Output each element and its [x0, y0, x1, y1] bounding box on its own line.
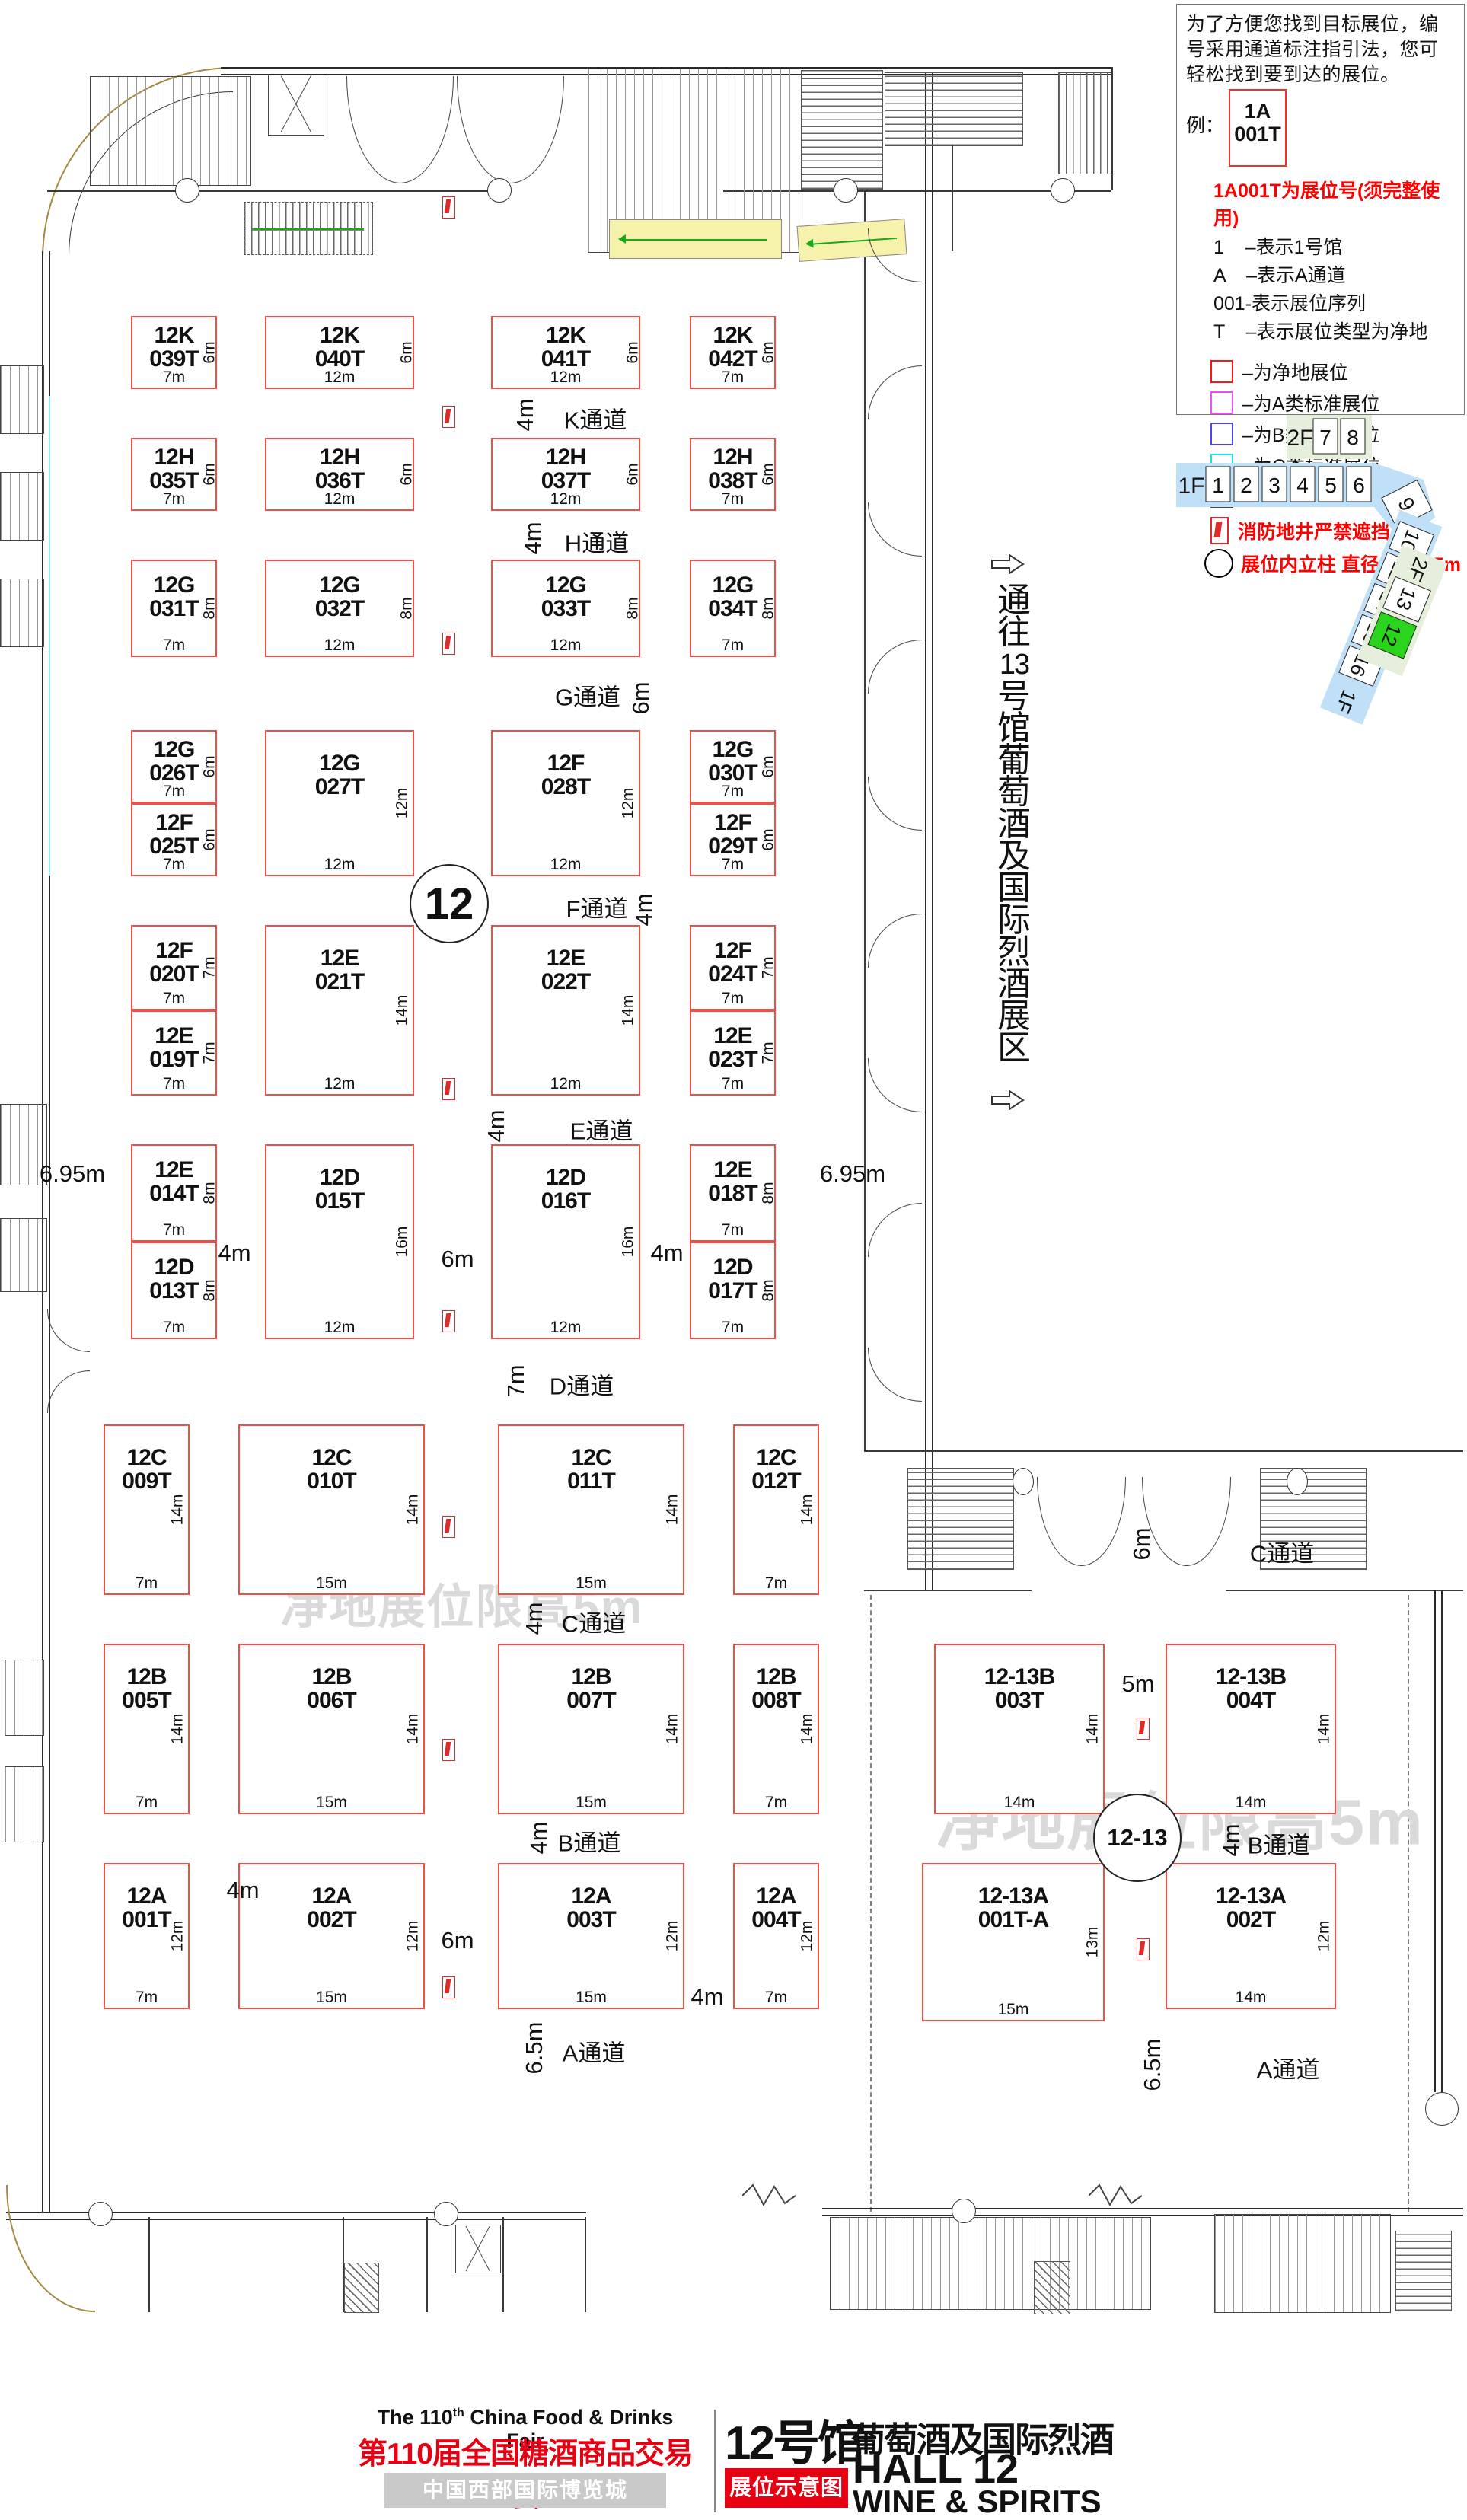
booth: 12H037T12m6m — [491, 438, 640, 511]
booth-id-line1: 12G — [493, 573, 639, 597]
example-booth-line1: 1A — [1230, 100, 1285, 123]
booth-depth-label: 6m — [759, 341, 777, 363]
column — [1425, 2092, 1459, 2126]
booth-width-label: 7m — [132, 368, 215, 387]
booth-id-line1: 12B — [105, 1665, 188, 1689]
booth-id: 12H037T — [493, 445, 639, 493]
door-arc — [868, 228, 922, 282]
door-arc — [510, 76, 564, 183]
corridor-note-char: 萄 — [990, 777, 1038, 809]
booth-id: 12B007T — [499, 1665, 683, 1712]
booth-width-label: 7m — [735, 1574, 818, 1593]
dimension-label: 6m — [441, 1927, 474, 1954]
booth: 12C012T7m14m — [733, 1424, 819, 1595]
booth: 12K039T7m6m — [131, 316, 217, 389]
booth: 12C010T15m14m — [238, 1424, 425, 1595]
booth-id-line1: 12E — [266, 946, 413, 970]
stairs-block — [1058, 72, 1111, 174]
hall-boundary-dashed-left — [870, 1595, 872, 2212]
booth-depth-label: 6m — [623, 341, 642, 363]
booth-id-line1: 12C — [105, 1446, 188, 1469]
passage-bottom-wall-a — [864, 1590, 1032, 1591]
corridor-note-char: 酒 — [990, 968, 1038, 1000]
booth-id-line1: 12E — [132, 1158, 215, 1182]
booth: 12G034T7m8m — [690, 560, 776, 657]
booth-id-line1: 12A — [240, 1884, 423, 1908]
passage-bottom-wall-b — [1226, 1590, 1463, 1591]
column — [1013, 1468, 1034, 1495]
booth-depth-label: 6m — [759, 828, 777, 850]
passage-stairs — [907, 1468, 1014, 1570]
corridor-note-char: 号 — [990, 681, 1038, 713]
aisle-width-label: 6m — [627, 681, 655, 714]
column — [487, 178, 512, 203]
door-arc — [1186, 1477, 1231, 1566]
restroom-block-topleft — [90, 76, 251, 186]
corridor-note-char: 际 — [990, 904, 1038, 936]
booth-depth-label: 6m — [759, 463, 777, 485]
booth-id: 12D015T — [266, 1166, 413, 1213]
footer-divider — [714, 2410, 716, 2512]
left-room — [5, 1660, 44, 1736]
booth-width-label: 7m — [691, 1319, 774, 1337]
booth: 12E018T7m8m — [690, 1144, 776, 1242]
aisle-name-label: F通道 — [566, 890, 628, 924]
aisle-width-label: 7m — [502, 1364, 530, 1397]
booth-depth-label: 13m — [1084, 1927, 1102, 1958]
booth-id: 12G027T — [266, 751, 413, 799]
booth-id-line2: 009T — [105, 1469, 188, 1493]
booth-width-label: 7m — [105, 1794, 188, 1812]
fair-name-en-sup: th — [453, 2407, 464, 2420]
legend-red-note: 1A001T为展位号(须完整使用) — [1213, 176, 1464, 231]
booth-width-label: 7m — [132, 856, 215, 874]
corridor-note-char: 葡 — [990, 745, 1038, 777]
hall-number-badge: 12-13 — [1093, 1794, 1182, 1882]
left-room — [5, 1766, 44, 1842]
corridor-note-char: 烈 — [990, 936, 1038, 968]
booth-id-line1: 12D — [691, 1255, 774, 1279]
booth-depth-label: 6m — [759, 755, 777, 777]
booth-id: 12A002T — [240, 1884, 423, 1931]
legend-intro: 为了方便您找到目标展位，编号采用通道标注指引法，您可轻松找到要到达的展位。 — [1186, 12, 1455, 88]
booth-id: 12H036T — [266, 445, 413, 493]
door-arc — [400, 76, 454, 183]
booth-id-line1: 12A — [105, 1884, 188, 1908]
booth: 12C011T15m14m — [498, 1424, 684, 1595]
aisle-width-label: 6.5m — [1139, 2039, 1166, 2091]
booth-width-label: 7m — [132, 1221, 215, 1239]
bottom-struct-wall — [502, 2217, 504, 2312]
booth: 12F024T7m7m — [690, 925, 776, 1010]
booth-id: 12F028T — [493, 751, 639, 799]
booth-width-label: 12m — [266, 1075, 413, 1093]
column — [952, 2199, 976, 2223]
door-arc — [868, 777, 922, 831]
booth: 12H036T12m6m — [265, 438, 414, 511]
booth: 12B006T15m14m — [238, 1644, 425, 1814]
booth-id-line2: 037T — [493, 469, 639, 493]
fire-well-icon — [442, 1310, 455, 1332]
booth-depth-label: 6m — [200, 341, 218, 363]
aisle-width-label: 4m — [519, 522, 547, 554]
booth-depth-label: 7m — [200, 1041, 218, 1064]
aisle-name-label: E通道 — [570, 1112, 633, 1147]
booth-id-line1: 12C — [240, 1446, 423, 1469]
left-wall-accent — [49, 396, 50, 876]
locator-1f-label: 1F — [1178, 474, 1204, 499]
booth: 12-13A001T-A15m13m — [922, 1863, 1105, 2021]
booth-id-line1: 12D — [266, 1166, 413, 1189]
fire-well-icon — [442, 633, 455, 655]
locator-2f-label: 2F — [1287, 426, 1313, 451]
fire-well-icon — [1137, 1718, 1150, 1740]
booth-id: 12B006T — [240, 1665, 423, 1712]
restroom-block-bottomright — [1214, 2214, 1391, 2313]
booth-depth-label: 8m — [759, 1182, 777, 1204]
booth: 12A004T7m12m — [733, 1863, 819, 2009]
booth-depth-label: 6m — [200, 828, 218, 850]
booth-id: 12-13B004T — [1167, 1665, 1335, 1712]
booth-width-label: 7m — [691, 368, 774, 387]
booth-width-label: 7m — [105, 1989, 188, 2007]
booth-depth-label: 12m — [1316, 1921, 1334, 1952]
booth: 12K040T12m6m — [265, 316, 414, 389]
booth-id-line2: 027T — [266, 775, 413, 799]
booth-id-line2: 033T — [493, 597, 639, 620]
annex-right-wall — [1434, 1590, 1443, 2092]
left-room — [0, 1218, 47, 1292]
booth-width-label: 7m — [691, 636, 774, 655]
booth-depth-label: 8m — [397, 597, 416, 619]
aisle-width-label: 4m — [512, 398, 539, 431]
booth-width-label: 7m — [132, 490, 215, 509]
booth-id-line2: 007T — [499, 1689, 683, 1712]
aisle-name-label: D通道 — [550, 1367, 614, 1402]
door-arc — [868, 1058, 922, 1112]
booth-id-line2: 015T — [266, 1189, 413, 1213]
locator-hall-number: 6 — [1353, 474, 1365, 497]
fire-well-icon — [442, 1976, 455, 1998]
booth: 12H035T7m6m — [131, 438, 217, 511]
booth-id-line1: 12F — [493, 751, 639, 775]
booth-id: 12C010T — [240, 1446, 423, 1493]
booth: 12B007T15m14m — [498, 1644, 684, 1814]
booth: 12E023T7m7m — [690, 1010, 776, 1096]
booth-width-label: 12m — [493, 368, 639, 387]
booth-depth-label: 14m — [620, 995, 638, 1026]
corridor-note-char: 及 — [990, 841, 1038, 872]
booth-id: 12G033T — [493, 573, 639, 620]
hall-boundary-dashed-right — [1408, 1595, 1409, 2212]
restroom-block-bottom — [830, 2217, 1151, 2310]
fire-well-icon — [442, 1078, 455, 1100]
booth-width-label: 12m — [266, 856, 413, 874]
legend-decode-lines: 1 –表示1号馆A –表示A通道001-表示展位序列T –表示展位类型为净地 — [1177, 234, 1464, 346]
booth-id-line1: 12B — [240, 1665, 423, 1689]
booth: 12E022T12m14m — [491, 925, 640, 1096]
booth-depth-label: 8m — [200, 1279, 218, 1301]
booth-depth-label: 14m — [664, 1494, 682, 1526]
stairs-block — [885, 72, 1023, 146]
right-arrow-icon — [991, 1090, 1025, 1110]
bottom-struct-wall — [426, 2217, 428, 2312]
booth-width-label: 12m — [493, 490, 639, 509]
legend-swatch-label: –为净地展位 — [1242, 358, 1348, 385]
booth-id-line1: 12-13A — [1167, 1884, 1335, 1908]
dimension-label: 4m — [690, 1983, 723, 2011]
booth-id-line1: 12K — [266, 324, 413, 347]
booth: 12A001T7m12m — [104, 1863, 190, 2009]
legend-decode-line: A –表示A通道 — [1213, 262, 1464, 290]
booth-id-line1: 12K — [493, 324, 639, 347]
legend-example-booth: 1A 001T — [1229, 89, 1287, 167]
booth: 12F029T7m6m — [690, 803, 776, 876]
hall-right-wall — [864, 190, 866, 1450]
corridor-note-char: 13 — [990, 649, 1038, 681]
booth: 12F020T7m7m — [131, 925, 217, 1010]
booth-depth-label: 14m — [1316, 1714, 1334, 1745]
corridor-note-char: 国 — [990, 872, 1038, 904]
legend-example: 例： 1A 001T — [1186, 89, 1464, 165]
booth-id-line2: 008T — [735, 1689, 818, 1712]
booth: 12B008T7m14m — [733, 1644, 819, 1814]
footer-branding: The 110th China Food & Drinks Fair 第110届… — [0, 2383, 1467, 2518]
booth-depth-label: 8m — [759, 1279, 777, 1301]
booth-id-line1: 12E — [493, 946, 639, 970]
booth-id: 12A003T — [499, 1884, 683, 1931]
booth-id-line1: 12C — [735, 1446, 818, 1469]
zigzag-break — [742, 2182, 796, 2209]
locator-hall-number: 5 — [1325, 474, 1337, 497]
booth: 12G032T12m8m — [265, 560, 414, 657]
booth-id-line2: 002T — [1167, 1908, 1335, 1931]
booth-width-label: 12m — [493, 1075, 639, 1093]
corridor-note-to-hall13: 通往13号馆葡萄酒及国际烈酒展区 — [990, 585, 1038, 1064]
dimension-label: 6m — [441, 1246, 474, 1273]
dimension-label: 4m — [650, 1239, 683, 1267]
door-arc — [868, 502, 922, 557]
column — [175, 178, 199, 203]
aisle-width-label: 4m — [521, 1602, 548, 1635]
booth-depth-label: 14m — [664, 1714, 682, 1745]
zigzag-break — [1089, 2182, 1142, 2209]
booth-width-label: 15m — [240, 1574, 423, 1593]
aisle-name-label: C通道 — [562, 1605, 626, 1639]
locator-hall-number: 7 — [1319, 426, 1331, 449]
booth-id-line2: 003T — [936, 1689, 1103, 1712]
left-room — [0, 579, 44, 647]
corridor-note-char: 展 — [990, 1000, 1038, 1032]
booth-depth-label: 8m — [200, 1182, 218, 1204]
booth-depth-label: 12m — [799, 1921, 817, 1952]
booth-width-label: 15m — [240, 1794, 423, 1812]
booth-id: 12D016T — [493, 1166, 639, 1213]
booth-depth-label: 6m — [397, 341, 416, 363]
booth-id-line2: 032T — [266, 597, 413, 620]
inner-wall-top-left — [47, 190, 489, 192]
booth-id-line2: 003T — [499, 1908, 683, 1931]
booth-depth-label: 12m — [169, 1921, 187, 1952]
booth-id-line1: 12B — [499, 1665, 683, 1689]
booth-depth-label: 14m — [169, 1494, 187, 1526]
locator-hall-number: 3 — [1268, 474, 1280, 497]
stairs-block — [801, 70, 883, 190]
bottom-struct-wall — [585, 2217, 586, 2312]
booth-id-line2: 036T — [266, 469, 413, 493]
aisle-width-label: 4m — [525, 1821, 553, 1854]
locator-hall-number: 8 — [1347, 426, 1359, 449]
booth: 12-13B004T14m14m — [1166, 1644, 1336, 1814]
corridor-outer-wall — [925, 72, 933, 1591]
booth-id-line1: 12B — [735, 1665, 818, 1689]
booth-id-line2: 004T — [1167, 1689, 1335, 1712]
booth-id: 12E021T — [266, 946, 413, 994]
booth-depth-label: 6m — [200, 755, 218, 777]
booth: 12E021T12m14m — [265, 925, 414, 1096]
booth-id-line1: 12C — [499, 1446, 683, 1469]
door-arc — [457, 76, 511, 183]
booth-width-label: 7m — [735, 1989, 818, 2007]
top-band-right-wall — [1111, 67, 1113, 190]
booth-id-line2: 011T — [499, 1469, 683, 1493]
booth-width-label: 15m — [499, 1794, 683, 1812]
fire-well-icon — [1137, 1938, 1150, 1960]
corridor-note-char: 通 — [990, 585, 1038, 617]
booth-id: 12-13A002T — [1167, 1884, 1335, 1931]
fair-name-en-pre: The 110 — [378, 2406, 453, 2429]
booth-id: 12-13B003T — [936, 1665, 1103, 1712]
bottom-struct-wall — [148, 2217, 150, 2312]
aisle-name-label: C通道 — [1250, 1535, 1314, 1569]
legend-decode-line: T –表示展位类型为净地 — [1213, 318, 1464, 346]
booth-id-line2: 010T — [240, 1469, 423, 1493]
door-arc — [1081, 1477, 1126, 1566]
booth: 12E019T7m7m — [131, 1010, 217, 1096]
booth-width-label: 12m — [493, 636, 639, 655]
booth: 12G031T7m8m — [131, 560, 217, 657]
booth-width-label: 15m — [240, 1989, 423, 2007]
booth-id-line1: 12D — [493, 1166, 639, 1189]
elevator-shaft — [455, 2225, 501, 2273]
booth-width-label: 12m — [266, 1319, 413, 1337]
door-arc — [868, 640, 922, 694]
aisle-name-label: A通道 — [563, 2034, 626, 2069]
booth-id: 12E022T — [493, 946, 639, 994]
dimension-label: 4m — [218, 1239, 250, 1267]
stairs-block — [1395, 2231, 1452, 2311]
aisle-width-label: 4m — [483, 1109, 510, 1142]
column — [1287, 1468, 1308, 1495]
booth-width-label: 12m — [266, 636, 413, 655]
corridor-note-char: 馆 — [990, 713, 1038, 745]
column — [434, 2202, 458, 2226]
booth-width-label: 12m — [493, 856, 639, 874]
booth-id-line2: 021T — [266, 970, 413, 994]
booth-width-label: 7m — [132, 990, 215, 1008]
booth-width-label: 7m — [132, 1319, 215, 1337]
booth: 12G027T12m12m — [265, 730, 414, 876]
plan-tag: 展位示意图 — [725, 2468, 848, 2508]
left-room — [0, 472, 44, 541]
booth-depth-label: 12m — [664, 1921, 682, 1952]
booth-width-label: 14m — [936, 1794, 1103, 1812]
stairs-block — [1034, 2261, 1070, 2314]
booth-width-label: 12m — [493, 1319, 639, 1337]
booth-id: 12C011T — [499, 1446, 683, 1493]
booth-id: 12-13A001T-A — [923, 1884, 1103, 1931]
door-arc — [868, 365, 922, 419]
booth-depth-label: 12m — [394, 788, 412, 819]
booth: 12G030T7m6m — [690, 730, 776, 803]
booth-id-line1: 12G — [266, 751, 413, 775]
left-room — [0, 365, 44, 434]
booth-id-line1: 12-13B — [936, 1665, 1103, 1689]
booth-depth-label: 6m — [200, 463, 218, 485]
booth-id-line2: 001T-A — [923, 1908, 1103, 1931]
legend-panel: 为了方便您找到目标展位，编号采用通道标注指引法，您可轻松找到要到达的展位。 例：… — [1176, 4, 1465, 415]
booth-id-line2: 041T — [493, 347, 639, 371]
booth-id-line1: 12-13A — [923, 1884, 1103, 1908]
aisle-width-label: 4m — [630, 893, 658, 926]
booth-id: 12K041T — [493, 324, 639, 371]
aisle-name-label: G通道 — [555, 678, 620, 713]
legend-example-label: 例： — [1186, 110, 1224, 138]
booth: 12C009T7m14m — [104, 1424, 190, 1595]
booth-depth-label: 8m — [200, 597, 218, 619]
booth-id-line2: 005T — [105, 1689, 188, 1712]
aisle-width-label: 4m — [1218, 1823, 1245, 1856]
aisle-name-label: H通道 — [565, 525, 629, 559]
booth-depth-label: 14m — [799, 1494, 817, 1526]
venue-name: 中国西部国际博览城 — [384, 2473, 666, 2508]
booth-id-line2: 006T — [240, 1689, 423, 1712]
booth-width-label: 12m — [266, 490, 413, 509]
legend-swatch-row: –为净地展位 — [1210, 359, 1464, 384]
booth-depth-label: 14m — [799, 1714, 817, 1745]
booth-depth-label: 14m — [394, 995, 412, 1026]
booth-width-label: 7m — [691, 1221, 774, 1239]
ramp-dashed-block — [244, 202, 373, 255]
booth: 12K042T7m6m — [690, 316, 776, 389]
booth-width-label: 7m — [735, 1794, 818, 1812]
locator-hall-number: 1 — [1212, 474, 1224, 497]
door-arc — [47, 1309, 90, 1352]
hall-locator-map: 2F781F123456910111415161F2F1312 — [1172, 411, 1467, 777]
fire-well-icon — [442, 1516, 455, 1538]
legend-decode-line: 001-表示展位序列 — [1213, 290, 1464, 318]
booth-id: 12B005T — [105, 1665, 188, 1712]
aisle-name-label: K通道 — [564, 401, 627, 435]
right-arrow-icon — [991, 554, 1025, 574]
booth-id-line1: 12H — [266, 445, 413, 469]
locator-hall-number: 4 — [1296, 474, 1309, 497]
booth-id: 12B008T — [735, 1665, 818, 1712]
booth: 12A002T15m12m — [238, 1863, 425, 2009]
wall-stub — [952, 145, 953, 251]
booth-width-label: 7m — [132, 636, 215, 655]
booth-depth-label: 6m — [397, 463, 416, 485]
aisle-name-label: A通道 — [1257, 2051, 1320, 2085]
booth-type-swatch — [1210, 360, 1233, 383]
booth-depth-label: 12m — [620, 788, 638, 819]
booth-width-label: 7m — [691, 1075, 774, 1093]
booth-depth-label: 12m — [404, 1921, 423, 1952]
booth: 12G033T12m8m — [491, 560, 640, 657]
booth-id-line1: 12H — [493, 445, 639, 469]
booth-depth-label: 14m — [404, 1714, 423, 1745]
booth-id-line1: 12D — [132, 1255, 215, 1279]
